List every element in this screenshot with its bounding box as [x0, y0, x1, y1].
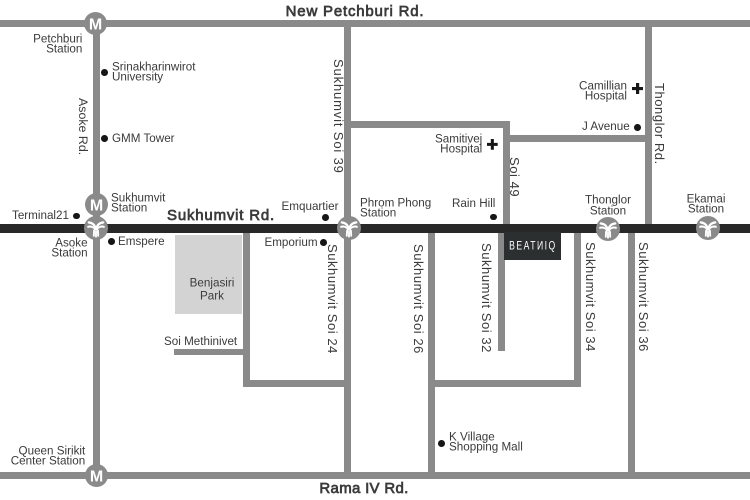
svg-text:M: M	[89, 197, 102, 214]
svg-text:M: M	[89, 16, 102, 33]
svg-text:BEATИIQ: BEATИIQ	[509, 241, 555, 254]
svg-text:M: M	[90, 468, 103, 485]
